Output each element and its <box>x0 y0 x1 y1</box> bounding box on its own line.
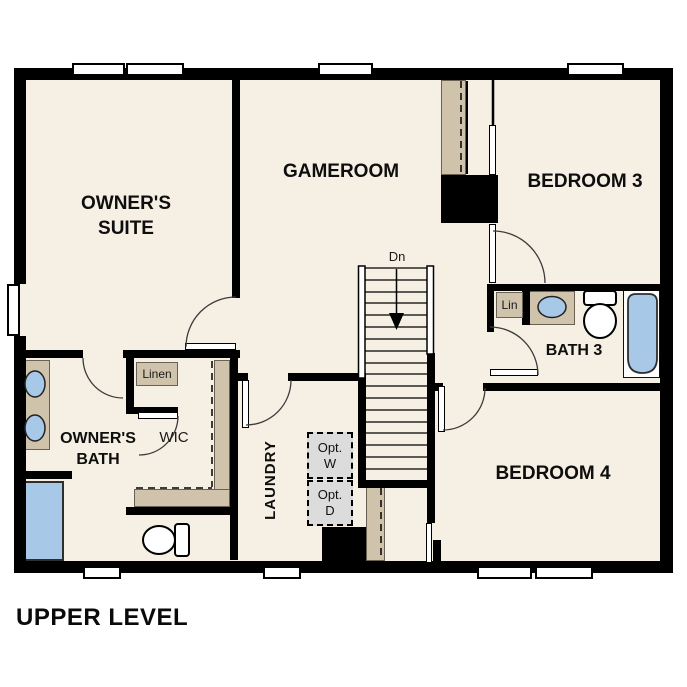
door-leaf <box>242 380 249 428</box>
window <box>72 63 125 76</box>
window <box>83 566 121 579</box>
door-leaf <box>489 125 496 175</box>
bedroom3-label: BEDROOM 3 <box>505 171 665 193</box>
wall-segment <box>660 68 673 573</box>
wall-segment <box>487 284 494 332</box>
wall-segment <box>230 352 238 560</box>
plan-title: UPPER LEVEL <box>16 604 188 632</box>
lin-closet: Lin <box>496 292 523 318</box>
wall-segment <box>14 68 26 284</box>
optional-dryer-label-line1: Opt. <box>318 487 343 503</box>
wall-segment <box>14 350 83 358</box>
wall-segment <box>427 353 435 523</box>
door-leaf <box>438 386 445 432</box>
wall-segment <box>441 175 498 223</box>
wic-shelf-bottom <box>134 489 230 507</box>
wall-segment <box>358 377 366 487</box>
wall-segment <box>322 527 366 572</box>
optional-dryer-box: Opt. D <box>307 480 353 526</box>
stair-chase <box>366 487 385 561</box>
wall-segment <box>483 383 660 391</box>
wall-segment <box>14 471 72 479</box>
door-leaf <box>185 343 236 350</box>
bath3-vanity <box>529 291 575 325</box>
window <box>7 284 20 336</box>
owners-bath-label: OWNER'S BATH <box>38 428 158 470</box>
linen-closet: Linen <box>136 362 178 386</box>
bath3-tub-surround <box>623 290 660 378</box>
floor-plan: Opt. W Opt. D Linen Lin <box>0 0 687 687</box>
wic-label: WIC <box>149 429 199 446</box>
wall-segment <box>522 291 530 325</box>
window <box>535 566 593 579</box>
lin-closet-label: Lin <box>497 293 522 317</box>
wall-segment <box>126 507 238 515</box>
wall-segment <box>126 352 134 413</box>
wall-segment <box>358 480 435 488</box>
window <box>567 63 624 76</box>
bedroom3-closet-shelf <box>441 80 466 175</box>
bath3-label: BATH 3 <box>534 342 614 360</box>
window <box>477 566 532 579</box>
optional-washer-label-line1: Opt. <box>318 440 343 456</box>
gameroom-label: GAMEROOM <box>266 161 416 183</box>
bedroom4-label: BEDROOM 4 <box>473 463 633 485</box>
wall-segment <box>14 336 26 573</box>
owners-suite-label: OWNER'S SUITE <box>51 191 201 241</box>
window <box>126 63 184 76</box>
optional-washer-box: Opt. W <box>307 432 353 479</box>
wall-segment <box>288 373 366 381</box>
wall-segment <box>433 540 441 573</box>
door-leaf <box>489 224 496 283</box>
door-leaf <box>138 412 178 419</box>
wic-shelf-right <box>214 360 230 507</box>
stairs-down-label: Dn <box>382 249 412 264</box>
door-leaf <box>426 523 432 563</box>
owners-shower <box>20 481 64 561</box>
door-leaf <box>490 369 538 376</box>
laundry-label: LAUNDRY <box>262 425 280 535</box>
linen-closet-label: Linen <box>137 363 177 385</box>
wall-segment <box>123 350 240 358</box>
window <box>263 566 301 579</box>
wall-segment <box>487 284 660 291</box>
optional-dryer-label-line2: D <box>325 503 334 519</box>
optional-washer-label-line2: W <box>324 456 336 472</box>
wall-segment <box>232 80 240 298</box>
window <box>318 63 373 76</box>
